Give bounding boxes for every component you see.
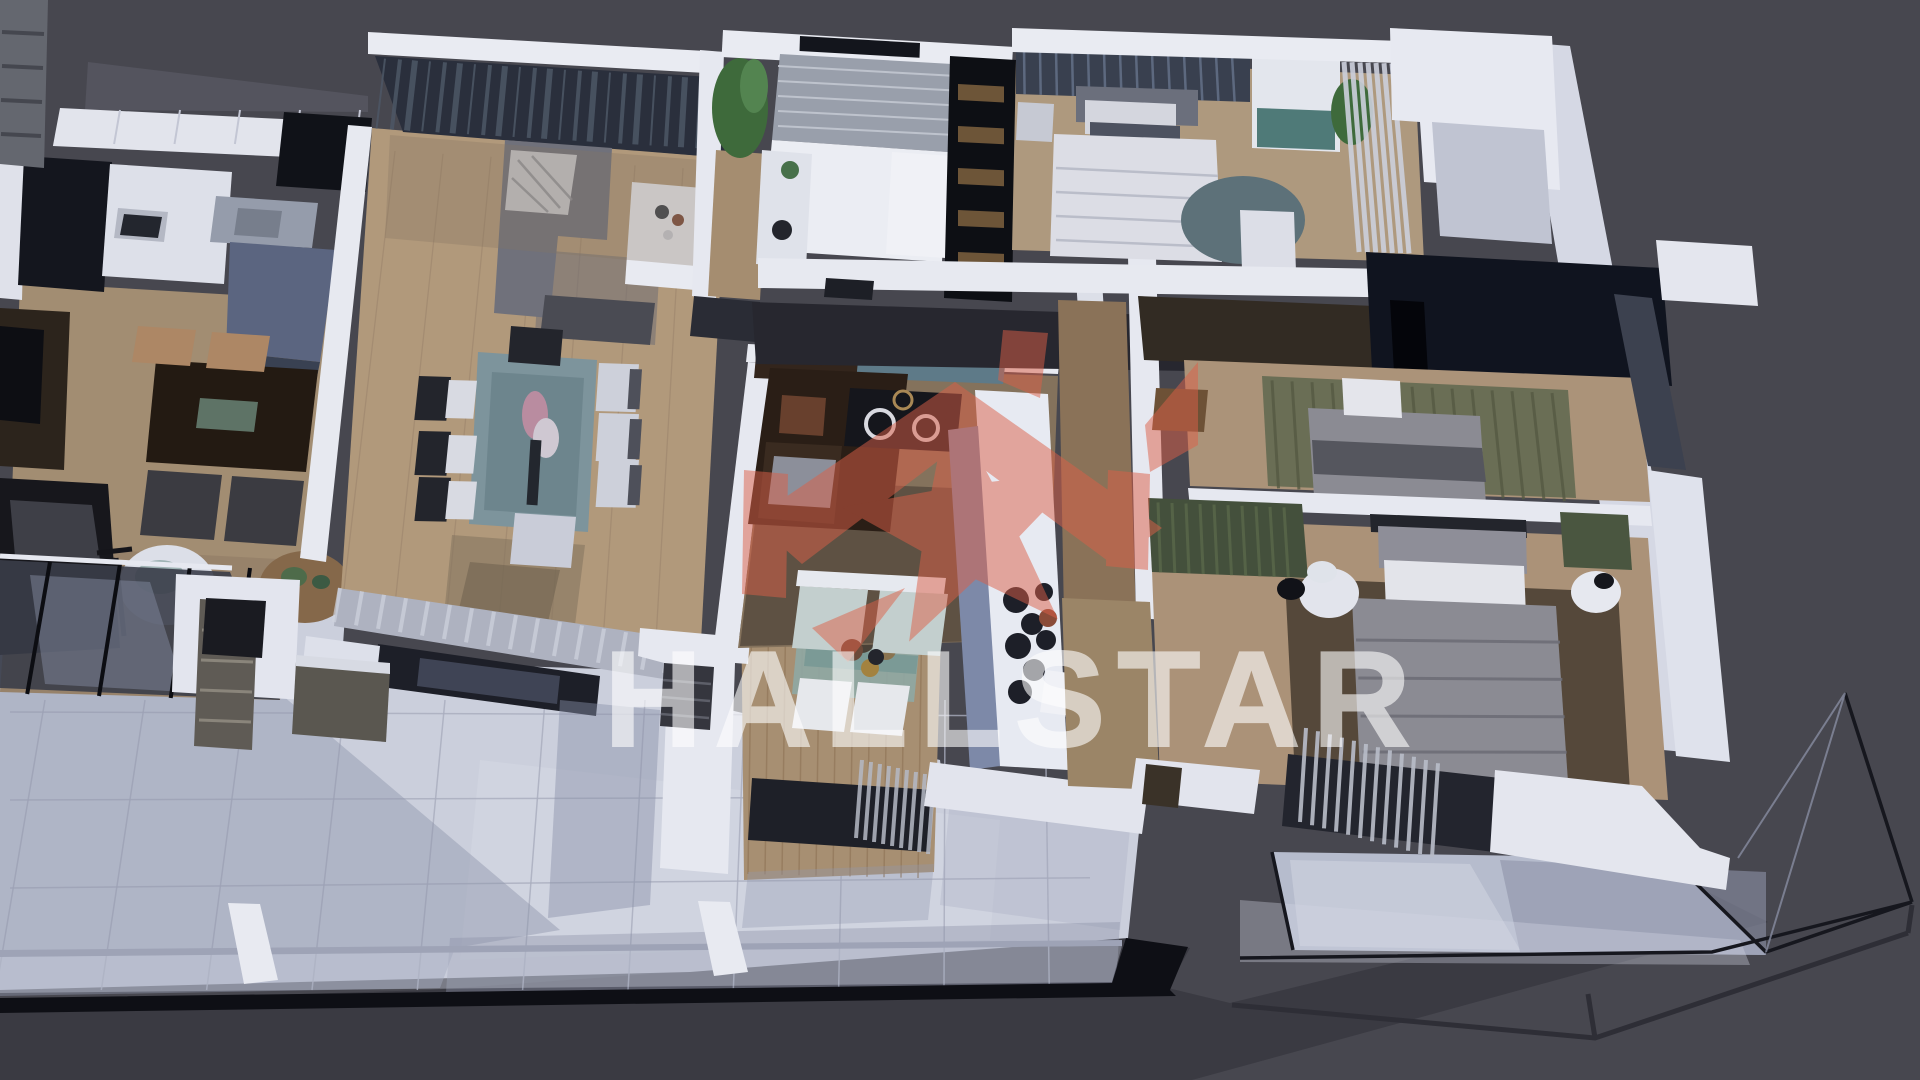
svg-text:HALLSTAR: HALLSTAR [604, 623, 1423, 775]
